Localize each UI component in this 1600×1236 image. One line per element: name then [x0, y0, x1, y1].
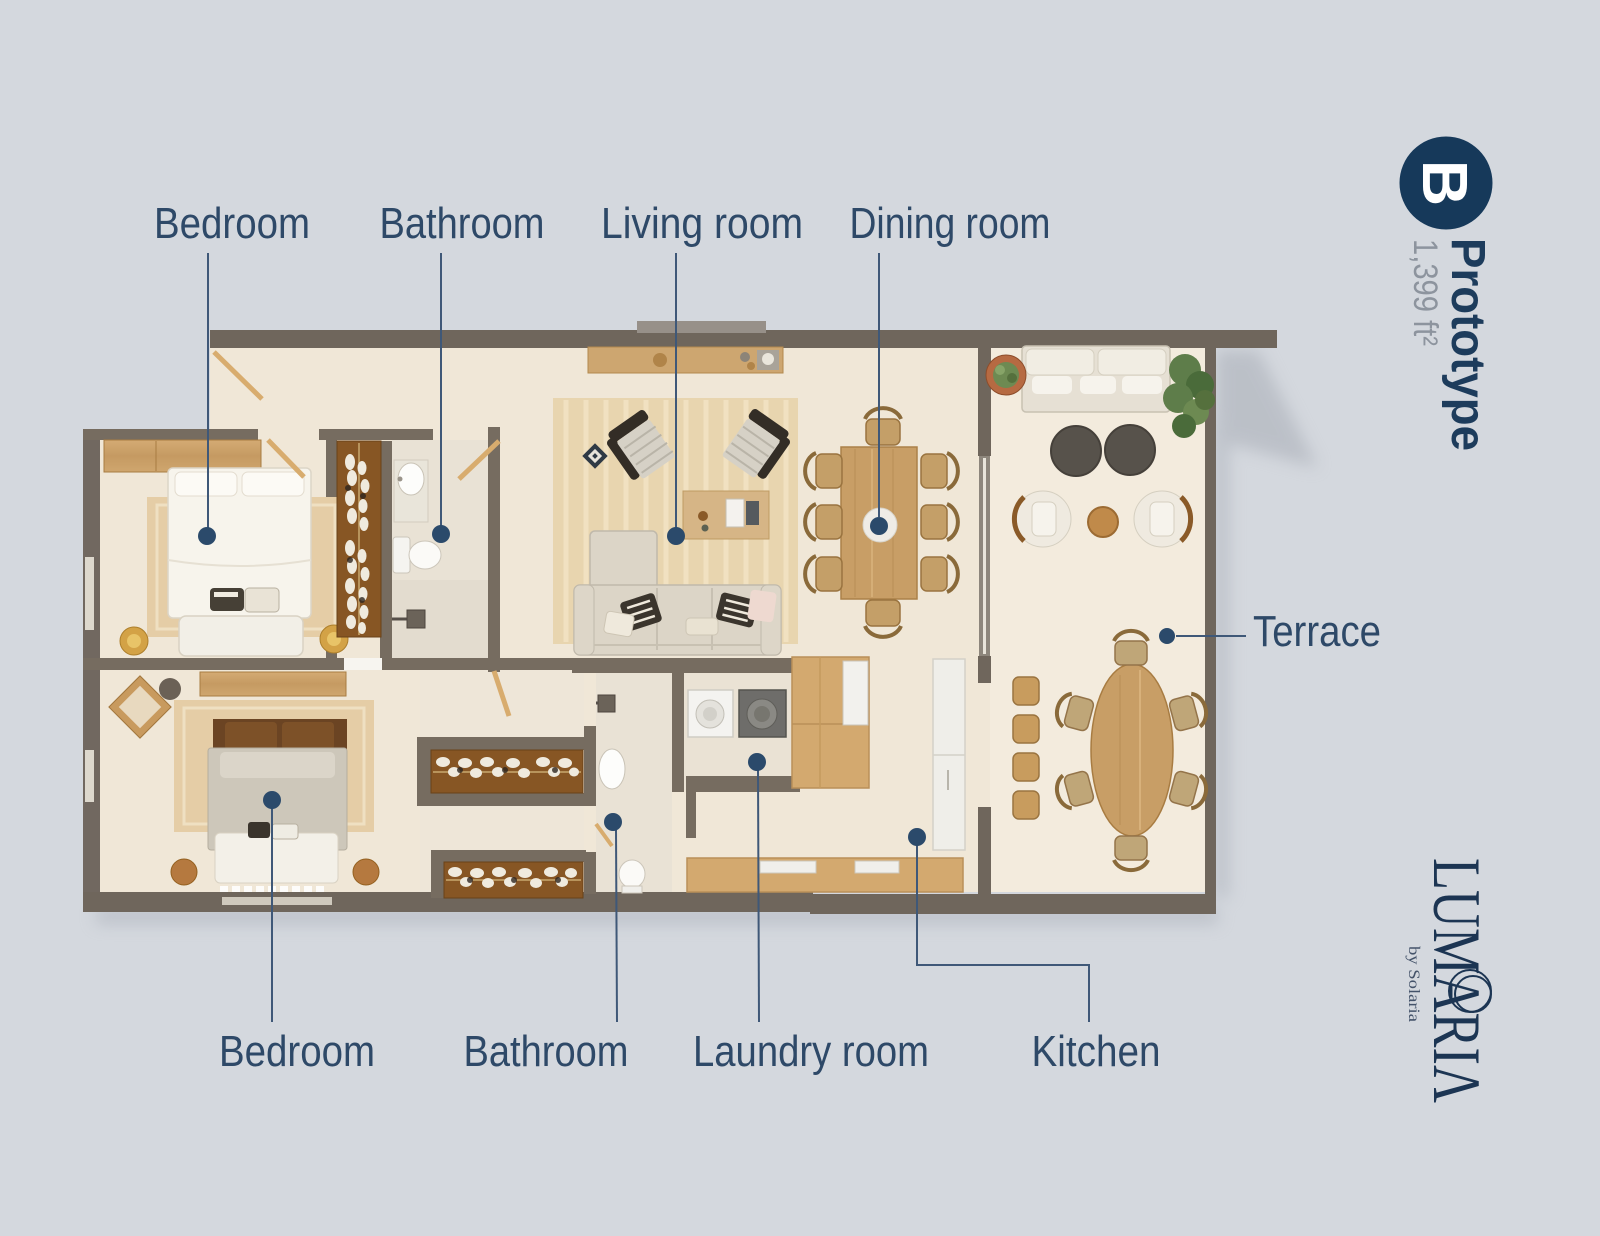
svg-text:Dining room: Dining room	[850, 199, 1051, 248]
svg-text:Laundry room: Laundry room	[693, 1027, 929, 1076]
svg-text:1,399 ft²: 1,399 ft²	[1406, 239, 1444, 346]
svg-text:B: B	[1409, 160, 1481, 206]
svg-text:Kitchen: Kitchen	[1032, 1027, 1161, 1076]
svg-text:Bathroom: Bathroom	[464, 1027, 629, 1076]
svg-text:Bedroom: Bedroom	[154, 199, 310, 248]
svg-text:Bedroom: Bedroom	[219, 1027, 375, 1076]
svg-text:LUMARIΛ: LUMARIΛ	[1419, 858, 1494, 1103]
svg-text:Living room: Living room	[601, 199, 803, 248]
svg-text:Bathroom: Bathroom	[380, 199, 545, 248]
svg-text:by Solaria: by Solaria	[1405, 946, 1422, 1022]
svg-text:Terrace: Terrace	[1253, 607, 1381, 656]
svg-text:Prototype: Prototype	[1441, 238, 1494, 451]
